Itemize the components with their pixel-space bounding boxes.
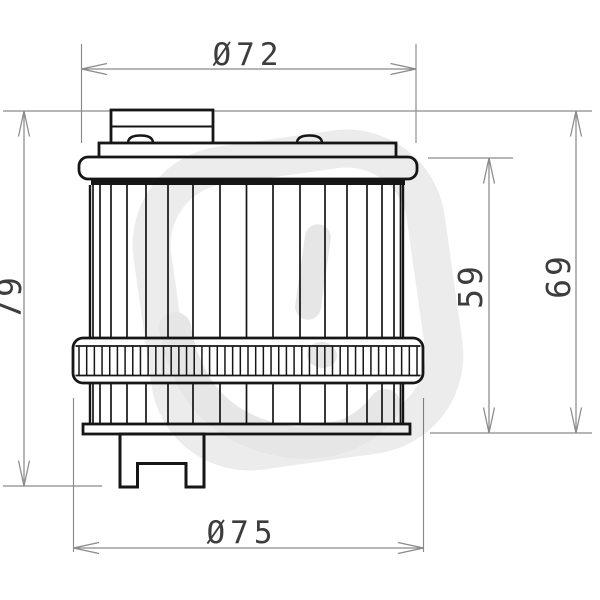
dim-label-height-to-base: 69: [539, 253, 578, 299]
dim-label-body-height: 59: [451, 263, 490, 309]
dimension-labels: Ø72 Ø75 79 59 69: [0, 37, 578, 551]
technical-drawing-canvas: Ø72 Ø75 79 59 69: [0, 0, 600, 600]
watermark-logo: [141, 138, 454, 462]
dim-label-overall-height: 79: [0, 274, 29, 320]
oil-filter-drawing: Ø72 Ø75 79 59 69: [0, 0, 600, 600]
dim-label-top-diameter: Ø72: [213, 37, 284, 73]
dim-label-bottom-diameter: Ø75: [207, 515, 278, 551]
